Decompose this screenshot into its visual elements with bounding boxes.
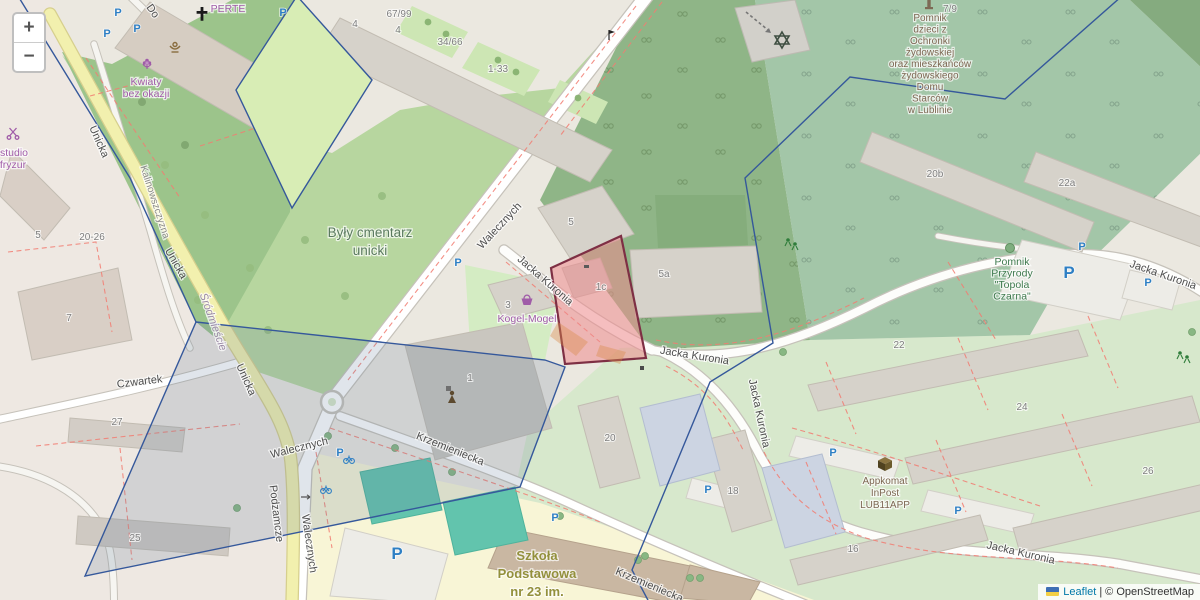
label-memorial: Domu: [917, 82, 944, 93]
house-number: 67/99: [386, 9, 411, 20]
osm-copyright[interactable]: © OpenStreetMap: [1105, 586, 1194, 598]
label-kogel-mogel: Kogel-Mogel: [498, 313, 557, 325]
house-number: 1c: [596, 282, 607, 293]
parking-icon: P: [1078, 241, 1085, 253]
parking-icon: P: [704, 484, 711, 496]
parking-icon-large: P: [391, 544, 402, 563]
label-kwiaty: bez okazji: [123, 88, 170, 100]
label-memorial: Ochronki: [910, 36, 950, 47]
house-number: 26: [1142, 466, 1154, 477]
parking-icon: P: [103, 28, 110, 40]
parking-icon: P: [551, 512, 558, 524]
house-number: 20b: [927, 169, 944, 180]
house-number: 16: [847, 544, 859, 555]
label-poplar: Czarna": [993, 291, 1031, 303]
zoom-in-button[interactable]: +: [14, 14, 44, 42]
parking-icon: P: [454, 257, 461, 269]
house-number: 22: [893, 340, 905, 351]
parking-icon: P: [1144, 277, 1151, 289]
label-poplar: Przyrody: [991, 268, 1033, 280]
stop-icon: [640, 366, 644, 370]
label-perte: PERTE: [211, 3, 246, 15]
parking-icon: P: [954, 505, 961, 517]
label-studio: studio: [0, 147, 28, 159]
label-school: Podstawowa: [498, 566, 578, 581]
map-tiles: P P P P P P P P P P P P P P Walecznych W…: [0, 0, 1200, 600]
parking-icon-large: P: [1063, 263, 1074, 282]
label-kwiaty: Kwiaty: [131, 76, 163, 88]
zoom-out-button[interactable]: −: [14, 42, 44, 71]
label-inpost: InPost: [871, 488, 900, 499]
area-grove: [655, 195, 748, 248]
label-memorial: dzieci z: [913, 25, 946, 36]
parking-icon: P: [279, 7, 286, 19]
label-memorial: żydowskiej: [906, 48, 954, 59]
label-poplar: "Topola: [995, 279, 1030, 291]
house-number: 4: [352, 19, 358, 30]
house-number: 1: [467, 373, 473, 384]
label-poplar: Pomnik: [994, 256, 1030, 268]
natural-monument-tree-icon: [1006, 244, 1015, 253]
house-number: 1-33: [488, 64, 508, 75]
house-number: 4: [395, 25, 401, 36]
house-number: 5: [568, 217, 574, 228]
label-school: Szkoła: [516, 548, 558, 563]
house-number: 24: [1016, 402, 1028, 413]
parking-icon: P: [114, 7, 121, 19]
parking-icon: P: [829, 447, 836, 459]
attribution-bar: Leaflet|© OpenStreetMap: [1038, 584, 1200, 600]
ukraine-flag-icon: [1046, 587, 1059, 596]
house-number: 25: [129, 533, 141, 544]
house-number: 34/66: [437, 37, 462, 48]
house-number: 7/9: [943, 4, 957, 15]
label-studio: fryzur: [0, 159, 27, 171]
house-number: 27: [111, 417, 123, 428]
attribution-separator: |: [1099, 586, 1102, 598]
label-memorial: oraz mieszkańców: [889, 59, 972, 70]
label-inpost: LUB11APP: [860, 500, 910, 511]
label-school: nr 23 im.: [510, 584, 563, 599]
bench-icon: [584, 265, 589, 268]
parking-icon: P: [133, 23, 140, 35]
leaflet-link[interactable]: Leaflet: [1063, 586, 1096, 598]
house-number: 3: [505, 300, 511, 311]
zoom-control: + −: [12, 12, 46, 73]
house-number: 20: [604, 433, 616, 444]
house-number: 5a: [658, 269, 670, 280]
parking-icon: P: [336, 447, 343, 459]
label-inpost: Appkomat: [862, 476, 907, 487]
house-number: 5: [35, 230, 41, 241]
map-canvas[interactable]: P P P P P P P P P P P P P P Walecznych W…: [0, 0, 1200, 600]
house-number: 20-26: [79, 232, 105, 243]
label-cemetery-line1: Były cmentarz: [328, 225, 413, 240]
label-memorial: w Lublinie: [907, 105, 953, 116]
label-memorial: żydowskiego: [901, 71, 959, 82]
label-cemetery-line2: unicki: [353, 243, 388, 258]
house-number: 7: [66, 313, 72, 324]
house-number: 22a: [1059, 178, 1076, 189]
label-memorial: Starców: [912, 94, 949, 105]
house-number: 18: [727, 486, 739, 497]
